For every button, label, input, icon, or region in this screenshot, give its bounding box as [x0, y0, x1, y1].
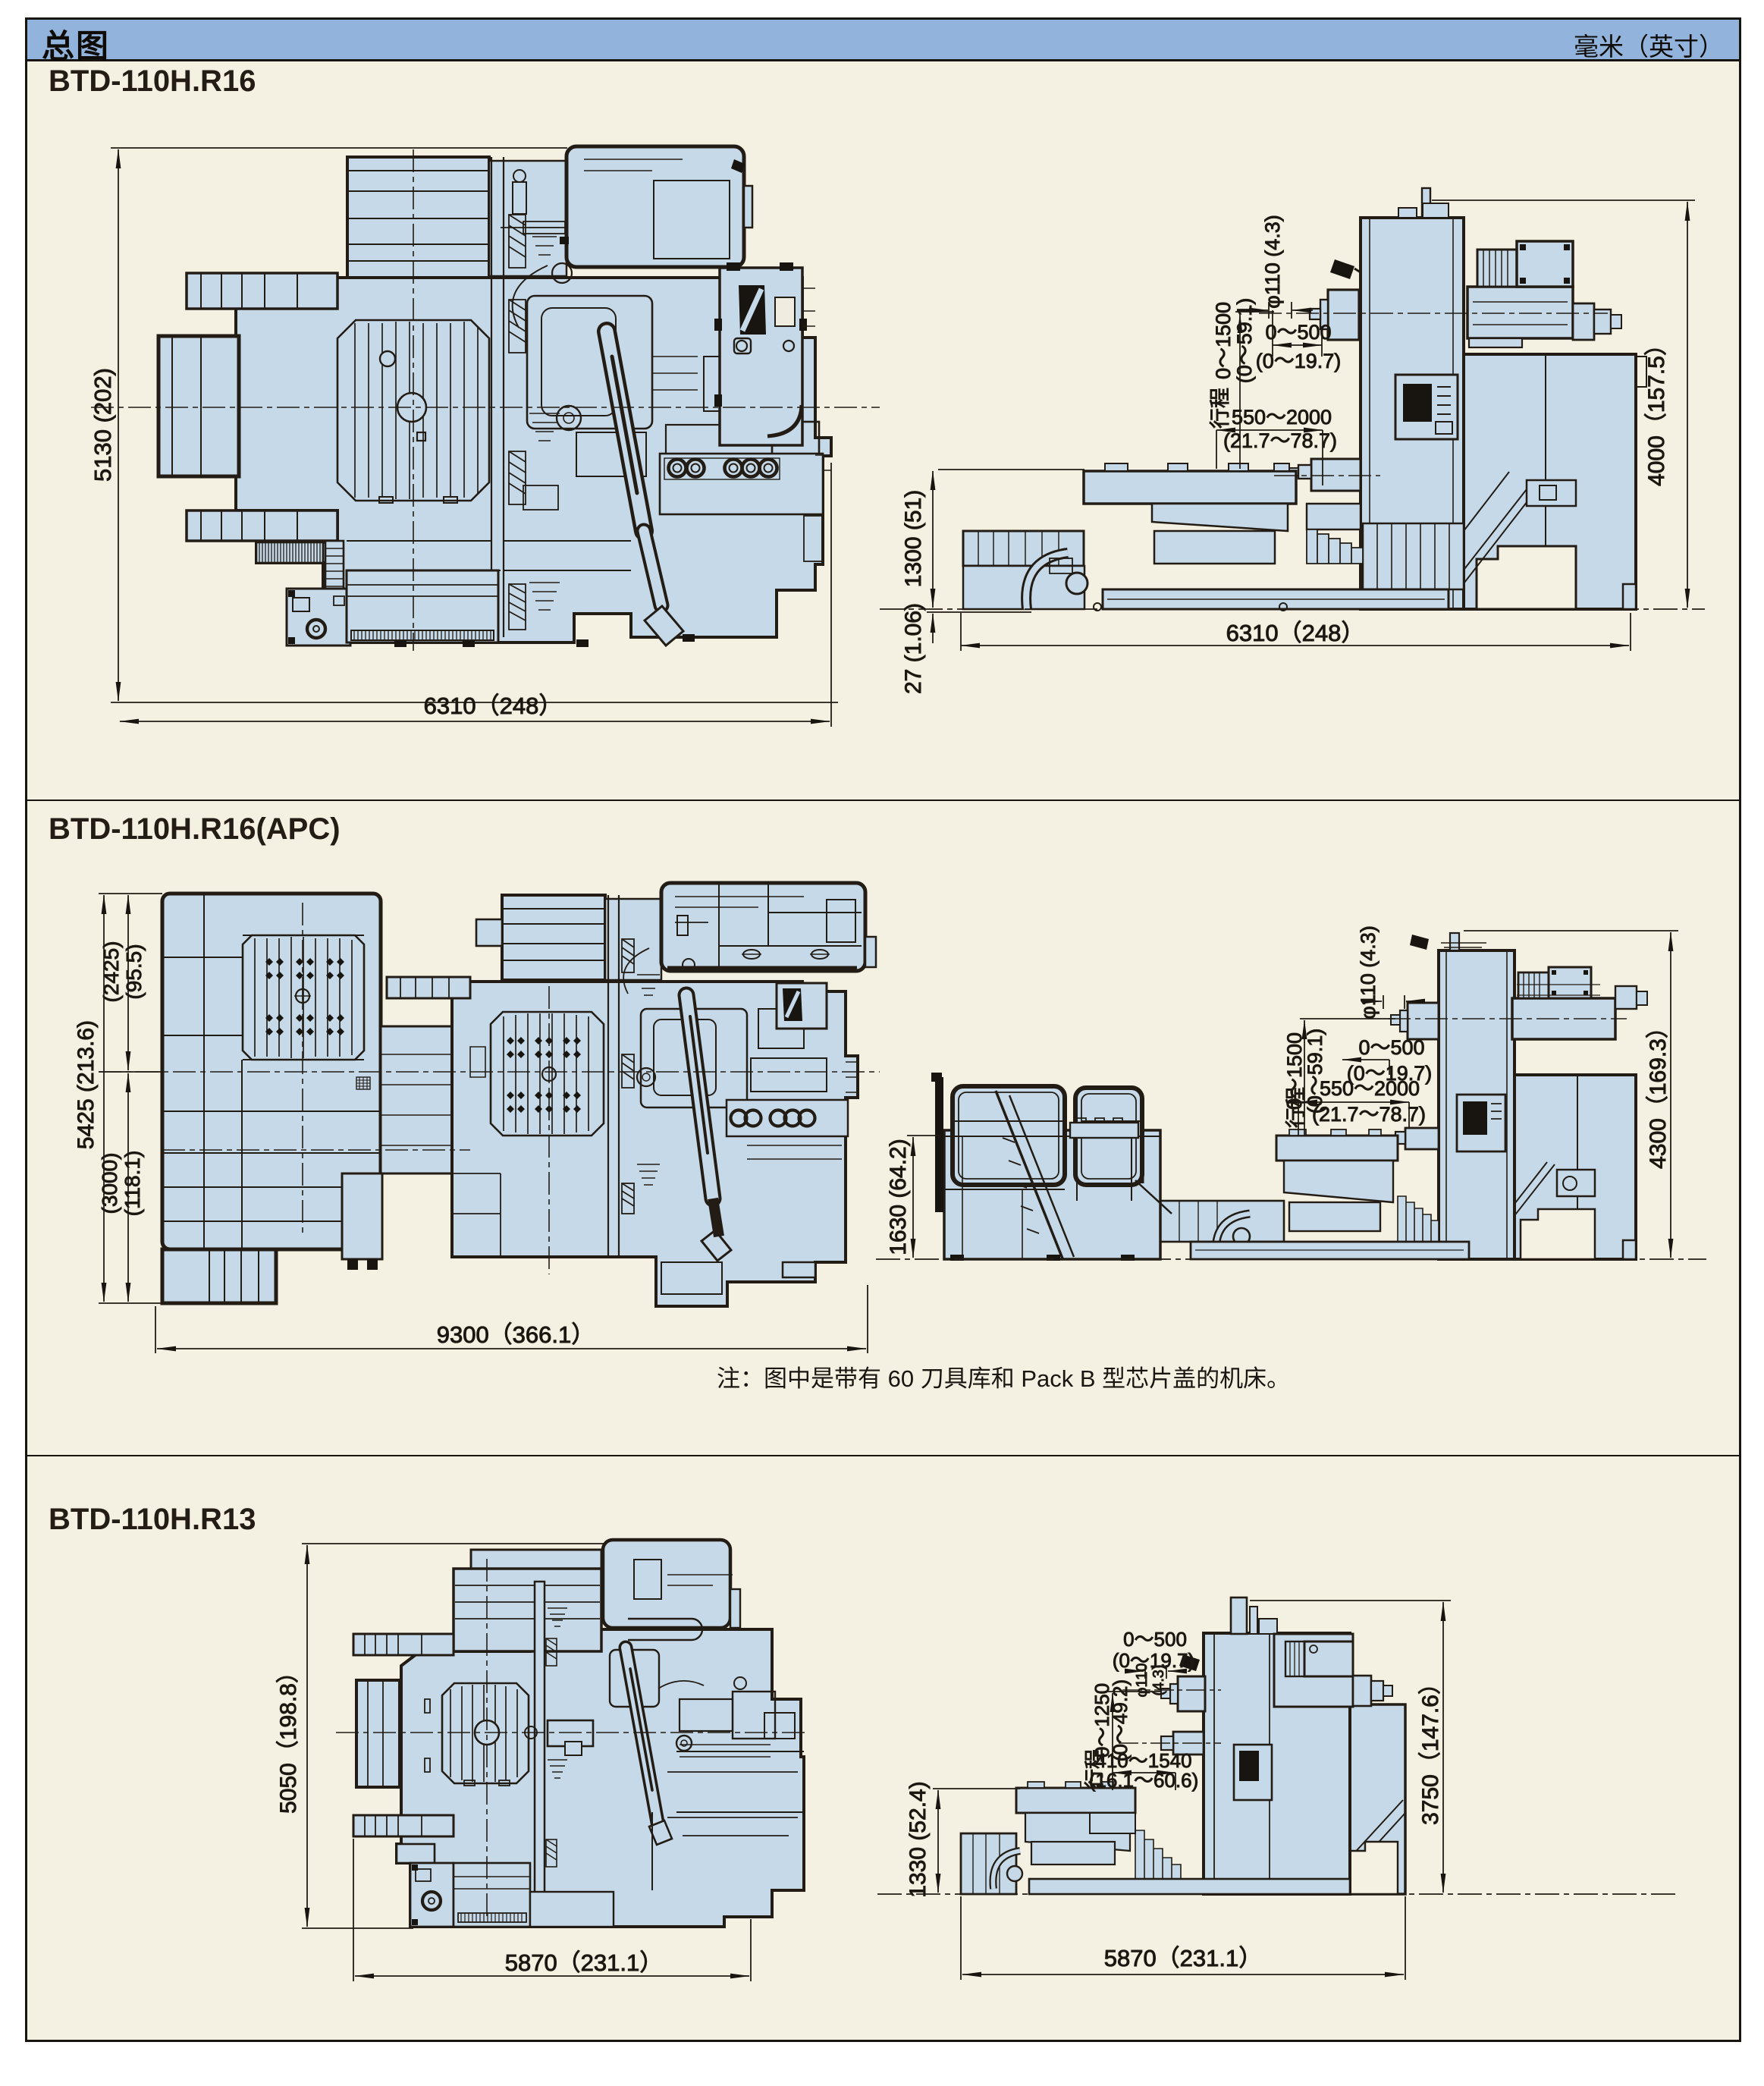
- svg-text:27 (1.06): 27 (1.06): [901, 603, 926, 694]
- svg-text:行程: 行程: [1209, 388, 1232, 429]
- svg-text:行程: 行程: [1285, 1087, 1307, 1128]
- svg-text:6310（248）: 6310（248）: [1226, 620, 1365, 646]
- svg-text:(21.7～78.7): (21.7～78.7): [1312, 1103, 1426, 1126]
- svg-text:(3000): (3000): [98, 1153, 121, 1214]
- svg-text:3750（147.6）: 3750（147.6）: [1418, 1672, 1443, 1825]
- svg-text:6310（248）: 6310（248）: [424, 693, 563, 719]
- svg-text:φ110 (4.3): φ110 (4.3): [1357, 925, 1379, 1019]
- svg-text:(16.1～60.6): (16.1～60.6): [1089, 1769, 1199, 1792]
- svg-text:9300（366.1）: 9300（366.1）: [437, 1321, 595, 1348]
- svg-text:1300 (51): 1300 (51): [901, 490, 926, 587]
- svg-text:(0～19.7): (0～19.7): [1256, 350, 1342, 372]
- svg-text:5130 (202): 5130 (202): [89, 368, 116, 482]
- svg-text:5425 (213.6): 5425 (213.6): [74, 1020, 99, 1149]
- svg-text:5050（198.8）: 5050（198.8）: [276, 1660, 301, 1814]
- svg-text:(118.1): (118.1): [121, 1151, 144, 1217]
- svg-text:0～1500: 0～1500: [1212, 302, 1235, 379]
- svg-text:(21.7～78.7): (21.7～78.7): [1223, 429, 1337, 452]
- svg-text:0～500: 0～500: [1265, 321, 1331, 344]
- svg-text:550～2000: 550～2000: [1320, 1077, 1420, 1100]
- svg-text:4000（157.5）: 4000（157.5）: [1644, 333, 1669, 486]
- svg-text:0～500: 0～500: [1358, 1036, 1424, 1059]
- svg-text:5870（231.1）: 5870（231.1）: [1104, 1945, 1263, 1971]
- svg-text:(95.5): (95.5): [122, 944, 146, 999]
- svg-text:(0～59.1): (0～59.1): [1233, 298, 1256, 384]
- svg-text:φ110: φ110: [1134, 1663, 1150, 1698]
- svg-text:4300（169.3）: 4300（169.3）: [1646, 1016, 1671, 1169]
- svg-text:(4.3): (4.3): [1150, 1664, 1167, 1695]
- svg-text:1330 (52.4): 1330 (52.4): [906, 1781, 931, 1897]
- svg-text:550～2000: 550～2000: [1232, 406, 1332, 429]
- svg-text:1630 (64.2): 1630 (64.2): [886, 1139, 911, 1255]
- svg-text:(2425): (2425): [99, 941, 123, 1003]
- svg-text:φ110 (4.3): φ110 (4.3): [1261, 215, 1284, 309]
- svg-text:5870（231.1）: 5870（231.1）: [505, 1949, 664, 1976]
- svg-text:0～500: 0～500: [1123, 1628, 1187, 1651]
